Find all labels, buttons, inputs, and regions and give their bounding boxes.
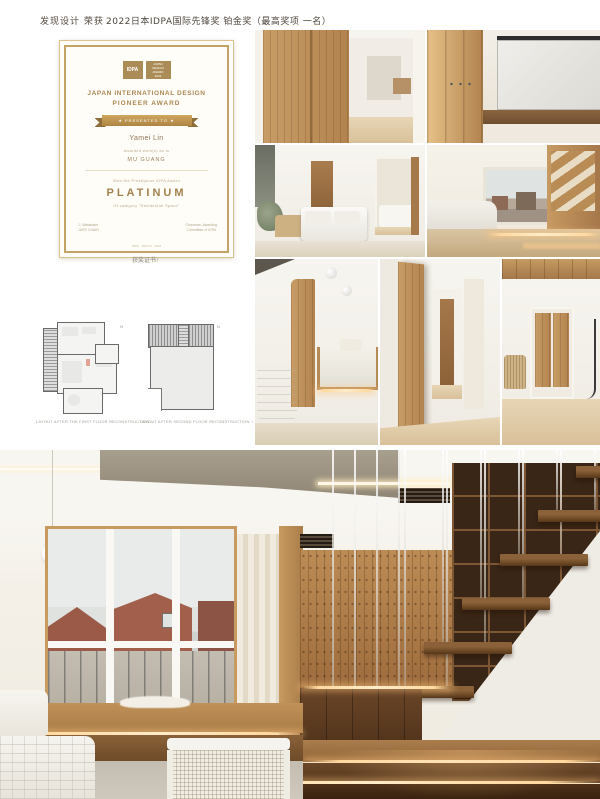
idpa-logo: IDPA	[123, 61, 143, 79]
photo-c-white-sofa	[301, 207, 367, 241]
photo-living-room	[255, 145, 425, 257]
photo-a-right-column	[413, 30, 425, 143]
certificate-content: IDPA JAPAN DESIGN AWARD 2022 JAPAN INTER…	[66, 47, 227, 251]
photo-f-open-door	[398, 262, 424, 435]
sofa-armrest	[0, 690, 48, 736]
stair-rod	[484, 450, 486, 642]
magazine-page: 发现设计 荣获 2022日本IDPA国际先锋奖 铂金奖（最高奖项 一名） IDP…	[0, 0, 600, 799]
photo-g-floor	[502, 399, 600, 445]
window-frame	[45, 526, 237, 718]
certificate-logos: IDPA JAPAN DESIGN AWARD 2022	[123, 61, 171, 79]
recipient-name: Yamei Lin	[129, 135, 163, 142]
drawer-plinth	[300, 688, 422, 748]
floorplan2-roof-right	[188, 324, 214, 348]
photo-c-balcony-window	[255, 145, 275, 207]
photo-c-bed	[379, 205, 415, 227]
floorplan1-furniture	[68, 394, 80, 406]
window-mullion-vertical	[106, 529, 114, 715]
photo-e-daybed	[317, 347, 378, 390]
signature-left: J. Watanabe JURY CHAIR	[78, 223, 99, 233]
floorplan2-caption: LAYOUT AFTER SECOND FLOOR RECONSTRUCTION…	[140, 419, 253, 424]
curtain	[237, 534, 279, 716]
white-sofa	[0, 736, 95, 799]
projection-screen	[497, 40, 600, 110]
header-award-line: 2022日本IDPA国际先锋奖 铂金奖（最高奖项 一名）	[106, 14, 331, 27]
sheepskin-throw	[120, 696, 190, 708]
window-glass	[48, 529, 234, 715]
photo-window-stairs	[427, 145, 600, 257]
floorplan2-north-marker: N	[217, 324, 220, 329]
photo-c-wood-door	[311, 161, 333, 213]
certificate-footer: IDPA · TOKYO · 2022	[60, 244, 233, 248]
floorplan2-roof-left	[148, 324, 180, 348]
stair-rod	[522, 450, 524, 598]
certificate-title-line2: PIONEER AWARD	[112, 100, 180, 107]
stair-rod	[398, 450, 400, 690]
photo-e-led	[317, 389, 375, 392]
window-mullion-vertical	[172, 529, 180, 715]
sofa-cushion	[305, 211, 331, 223]
led-strip-plinth	[300, 686, 452, 689]
floorplan1-furniture	[62, 327, 78, 336]
stair-tread	[576, 466, 600, 478]
view-building	[516, 192, 536, 210]
signature-right: Chairman, Awarding Committee of IDPA	[186, 223, 217, 233]
photo-wardrobe-hallway	[255, 30, 425, 143]
floorplan-second-floor	[148, 324, 214, 412]
logo-line: 2022	[152, 74, 164, 78]
stair-tread	[462, 598, 550, 610]
photo-g-wood-ceiling	[502, 259, 600, 279]
japan-design-award-text: JAPAN DESIGN AWARD 2022	[152, 62, 164, 78]
photo-b-console	[483, 110, 600, 124]
photo-b-lower-wall	[483, 124, 600, 143]
photo-a-wood-wardrobe	[263, 30, 349, 143]
photo-g-floor-lamp	[584, 319, 596, 399]
photo-projector-screen	[427, 30, 600, 143]
daybed-pillow	[340, 339, 362, 351]
sofa-cushion	[334, 211, 360, 223]
floorplan1-furniture	[82, 327, 96, 334]
work-title: MU GUANG	[127, 157, 165, 163]
photo-d-sofa	[427, 201, 497, 231]
photo-c-floor	[255, 241, 425, 257]
photo-a-left-wall	[255, 30, 263, 143]
stair-rod	[404, 450, 406, 686]
photo-a-far-furniture	[393, 78, 411, 94]
award-category: Of category "Residential Space"	[113, 203, 179, 208]
floorplan1-furniture	[62, 361, 82, 383]
photo-entry	[502, 259, 600, 445]
floorplan1-north-marker: N	[120, 324, 123, 329]
certificate-divider	[85, 170, 207, 171]
stair-rod	[594, 450, 596, 510]
stair-rod	[556, 450, 558, 510]
photo-f-right-door	[464, 279, 484, 409]
photo-main-living-stairs	[0, 450, 600, 799]
photo-d-led-strip	[487, 233, 600, 236]
floorplan1-balcony	[63, 388, 103, 414]
award-level: PLATINUM	[106, 187, 186, 199]
rattan-chair-post	[284, 750, 290, 799]
award-certificate: IDPA JAPAN DESIGN AWARD 2022 JAPAN INTER…	[59, 40, 234, 258]
ribbon-text: ★ PRESENTED TO ★	[102, 115, 192, 126]
header-brand: 发现设计 荣获	[40, 14, 104, 27]
pendant-lamp	[325, 267, 337, 279]
photo-e-floor-cushion	[257, 363, 297, 419]
photo-g-rattan-chair	[504, 355, 526, 389]
photo-hallway	[380, 259, 500, 445]
signature-left-role: JURY CHAIR	[78, 228, 99, 233]
wardrobe-seam	[310, 30, 312, 143]
photo-bedroom	[255, 259, 378, 445]
floorplan-first-floor	[43, 322, 118, 414]
stair-rod	[518, 450, 520, 554]
floorplan1-door-marker	[86, 359, 90, 366]
photo-f-left-wall	[380, 259, 398, 445]
photo-d-stair-treads	[551, 151, 595, 211]
photo-c-door-edge	[411, 157, 419, 235]
floorplan2-notch	[148, 388, 162, 411]
stair-rod	[560, 450, 562, 554]
pendant-lamp	[341, 285, 352, 296]
cabinet-handles	[447, 82, 473, 86]
work-intro: Awarded work(s) as to	[123, 148, 169, 153]
stair-tread	[538, 510, 600, 522]
photo-g-niche	[530, 307, 574, 399]
photo-f-corridor-floor	[432, 385, 462, 399]
photo-f-far-door	[440, 299, 454, 385]
window-transom	[48, 641, 234, 648]
photo-e-floor	[255, 423, 378, 445]
award-intro: Won the Prestigious IDPA Award	[113, 178, 180, 183]
floorplan1-caption: LAYOUT AFTER THE FIRST FLOOR RECONSTRUCT…	[36, 419, 153, 424]
stair-rod	[480, 450, 482, 598]
stair-rod	[376, 450, 378, 712]
photo-g-cabinet-door	[553, 313, 569, 387]
ambient-glow	[330, 750, 600, 799]
stair-rod	[442, 450, 444, 642]
vent-grille-left	[300, 534, 334, 548]
japan-design-award-logo: JAPAN DESIGN AWARD 2022	[146, 61, 171, 79]
floorplan1-side-room	[95, 344, 119, 364]
presented-to-ribbon: ★ PRESENTED TO ★	[95, 115, 199, 126]
photo-b-wood-cabinet-doors	[427, 30, 483, 143]
stair-tread	[500, 554, 588, 566]
rattan-chair-post	[167, 750, 173, 799]
ceiling-cove-light-left	[0, 468, 110, 470]
stair-tread	[424, 642, 512, 654]
signature-right-role: Committee of IDPA	[186, 228, 217, 233]
certificate-caption: 获奖证书↑	[59, 255, 232, 264]
photo-c-doorway	[375, 157, 419, 235]
rattan-chair-top-rail	[167, 738, 290, 750]
rattan-chair-mesh	[172, 750, 285, 799]
photo-d-led-glow	[523, 243, 600, 249]
photo-g-cabinet-door	[535, 313, 551, 387]
ceiling-cove-light-right	[318, 482, 450, 485]
certificate-title-line1: JAPAN INTERNATIONAL DESIGN	[87, 90, 205, 97]
photo-f-corridor	[432, 289, 462, 399]
